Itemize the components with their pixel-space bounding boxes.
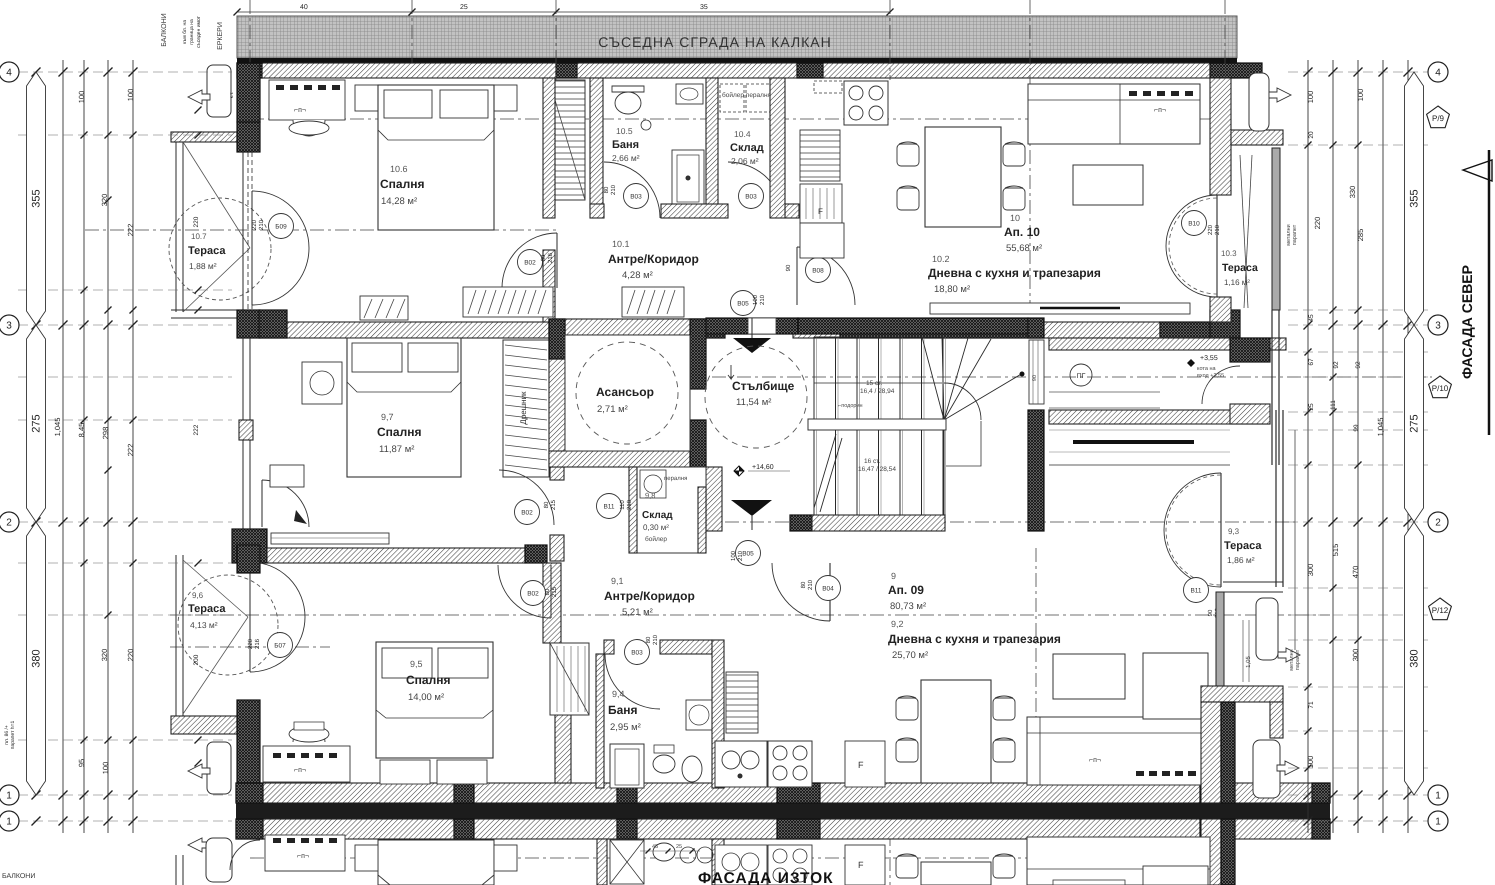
svg-text:200: 200 [193, 654, 200, 665]
svg-text:80: 80 [543, 501, 550, 508]
svg-text:3: 3 [1435, 321, 1441, 332]
svg-text:220: 220 [193, 216, 200, 227]
svg-text:100: 100 [752, 294, 759, 305]
svg-text:10.2: 10.2 [932, 254, 950, 264]
svg-text:1: 1 [1435, 791, 1441, 802]
svg-text:⌐п¬: ⌐п¬ [1089, 757, 1101, 764]
svg-text:Ап. 10: Ап. 10 [1004, 225, 1040, 239]
svg-text:16,4 / 28,94: 16,4 / 28,94 [860, 388, 895, 395]
svg-text:Р/10: Р/10 [1432, 384, 1449, 393]
svg-text:1: 1 [6, 817, 12, 828]
svg-text:бойлер пералня: бойлер пералня [722, 92, 772, 99]
svg-text:8,45: 8,45 [77, 423, 86, 438]
svg-text:Б09: Б09 [275, 224, 287, 231]
svg-text:3: 3 [6, 321, 12, 332]
svg-text:18,80 м²: 18,80 м² [934, 284, 970, 295]
svg-text:9,8: 9,8 [645, 491, 655, 500]
svg-text:210: 210 [626, 499, 633, 510]
svg-text:1,86 м²: 1,86 м² [1227, 555, 1255, 565]
svg-text:100: 100 [1356, 89, 1365, 102]
svg-text:В02: В02 [527, 591, 539, 598]
svg-text:20: 20 [1308, 131, 1315, 139]
svg-text:Стълбище: Стълбище [732, 379, 795, 393]
svg-text:0,30 м²: 0,30 м² [643, 523, 669, 532]
svg-text:СЪСЕДНА СГРАДА НА КАЛКАН: СЪСЕДНА СГРАДА НА КАЛКАН [598, 34, 832, 50]
svg-text:2,06 м²: 2,06 м² [731, 156, 759, 166]
svg-text:БАЛКОНИ: БАЛКОНИ [2, 873, 35, 880]
svg-text:15 ст.: 15 ст. [866, 380, 883, 387]
svg-text:25,70 м²: 25,70 м² [892, 650, 928, 661]
svg-text:В03: В03 [745, 194, 757, 201]
svg-text:парапет: парапет [1292, 224, 1298, 245]
svg-text:Ап. 09: Ап. 09 [888, 583, 924, 597]
svg-text:парапет: парапет [1295, 649, 1301, 670]
svg-text:1: 1 [6, 791, 12, 802]
svg-text:210: 210 [1214, 224, 1221, 235]
svg-text:470: 470 [1351, 566, 1360, 579]
svg-text:Р/12: Р/12 [1432, 606, 1449, 615]
svg-text:210: 210 [759, 294, 766, 305]
svg-text:80,73 м²: 80,73 м² [890, 601, 926, 612]
svg-text:Асансьор: Асансьор [596, 385, 654, 399]
svg-text:вход +3,55: вход +3,55 [1197, 373, 1224, 379]
svg-text:210: 210 [807, 579, 814, 590]
svg-text:10.5: 10.5 [616, 126, 633, 136]
svg-text:95: 95 [77, 759, 86, 767]
svg-text:222: 222 [126, 444, 135, 457]
svg-text:бойлер: бойлер [645, 536, 667, 543]
svg-text:Склад: Склад [730, 142, 764, 154]
svg-text:355: 355 [1409, 189, 1421, 207]
svg-text:ФАСАДА ИЗТОК: ФАСАДА ИЗТОК [698, 870, 834, 885]
svg-text:1,88 м²: 1,88 м² [189, 261, 217, 271]
svg-text:298: 298 [101, 427, 110, 440]
svg-text:+14,60: +14,60 [752, 464, 774, 471]
svg-text:215: 215 [550, 499, 557, 510]
svg-text:Спалня: Спалня [406, 673, 450, 687]
svg-text:2,66 м²: 2,66 м² [612, 153, 640, 163]
svg-text:В10: В10 [1188, 221, 1200, 228]
svg-text:⌐п¬: ⌐п¬ [297, 853, 309, 860]
svg-text:2: 2 [6, 518, 12, 529]
svg-text:1: 1 [1435, 817, 1441, 828]
svg-text:1,045: 1,045 [53, 418, 62, 437]
svg-text:515: 515 [1331, 544, 1340, 557]
svg-text:пералня: пералня [664, 476, 687, 482]
svg-text:съседен имот: съседен имот [196, 15, 202, 48]
svg-text:В11: В11 [603, 504, 614, 511]
svg-text:В03: В03 [631, 650, 643, 657]
svg-text:ПГ: ПГ [1077, 373, 1086, 380]
svg-text:216: 216 [254, 638, 261, 649]
svg-text:25: 25 [1308, 403, 1315, 411]
svg-text:92: 92 [1355, 361, 1362, 369]
svg-text:Дневна с кухня и трапезария: Дневна с кухня и трапезария [928, 266, 1101, 280]
svg-text:80: 80 [540, 254, 547, 261]
svg-text:2,71 м²: 2,71 м² [597, 404, 628, 415]
svg-text:+3,55: +3,55 [1200, 355, 1218, 362]
svg-text:100: 100 [1306, 756, 1315, 769]
svg-text:275: 275 [1409, 414, 1421, 432]
svg-text:100: 100 [101, 762, 110, 775]
svg-text:ЕРКЕРИ: ЕРКЕРИ [217, 22, 224, 50]
svg-text:4,28 м²: 4,28 м² [622, 270, 653, 281]
svg-text:90: 90 [1207, 609, 1214, 616]
svg-text:320: 320 [100, 649, 109, 662]
svg-text:кота на: кота на [1197, 366, 1216, 372]
svg-text:90: 90 [1032, 375, 1038, 381]
svg-text:320: 320 [100, 194, 109, 207]
svg-text:215: 215 [551, 586, 558, 597]
svg-text:330: 330 [1348, 186, 1357, 199]
svg-text:380: 380 [1409, 649, 1421, 667]
svg-text:Склад: Склад [642, 510, 673, 521]
svg-text:355: 355 [31, 189, 43, 207]
svg-text:14,28 м²: 14,28 м² [381, 196, 417, 207]
svg-text:Баня: Баня [612, 139, 639, 151]
svg-text:100: 100 [126, 89, 135, 102]
svg-text:380: 380 [31, 649, 43, 667]
svg-text:Спалня: Спалня [377, 425, 421, 439]
svg-text:5,21 м²: 5,21 м² [622, 607, 653, 618]
svg-text:300: 300 [1306, 564, 1315, 577]
svg-text:80: 80 [800, 581, 807, 588]
svg-text:80: 80 [544, 588, 551, 595]
svg-text:100: 100 [77, 91, 86, 104]
svg-text:210: 210 [258, 219, 265, 230]
svg-text:45: 45 [1308, 314, 1315, 322]
svg-text:1,05: 1,05 [1245, 656, 1252, 668]
svg-text:9,1: 9,1 [611, 576, 624, 586]
svg-text:Тераса: Тераса [1222, 262, 1258, 274]
svg-text:25: 25 [460, 4, 468, 11]
svg-text:9,2: 9,2 [891, 619, 904, 629]
svg-text:10: 10 [1010, 213, 1020, 223]
svg-text:80: 80 [645, 636, 652, 643]
svg-text:99: 99 [1353, 424, 1360, 432]
svg-text:В03: В03 [630, 194, 642, 201]
svg-text:100: 100 [1306, 91, 1315, 104]
svg-text:275: 275 [31, 414, 43, 432]
svg-text:⌐п¬: ⌐п¬ [1154, 107, 1166, 114]
svg-text:220: 220 [126, 649, 135, 662]
svg-text:300: 300 [1351, 649, 1360, 662]
svg-text:67: 67 [1308, 358, 1315, 366]
svg-text:В02: В02 [524, 260, 536, 267]
svg-text:10.1: 10.1 [612, 239, 630, 249]
svg-text:Дрешник: Дрешник [519, 391, 528, 425]
svg-text:16,47 / 28,54: 16,47 / 28,54 [858, 466, 896, 473]
svg-text:285: 285 [1356, 229, 1365, 242]
svg-text:F: F [818, 207, 823, 216]
svg-text:9,6: 9,6 [192, 591, 204, 600]
svg-text:216: 216 [547, 252, 554, 263]
svg-text:220: 220 [1313, 217, 1322, 230]
svg-text:В05: В05 [737, 301, 749, 308]
svg-text:220: 220 [1207, 224, 1214, 235]
svg-text:В11: В11 [1190, 588, 1201, 595]
svg-text:210: 210 [610, 184, 617, 195]
svg-text:9,7: 9,7 [381, 412, 394, 422]
svg-text:Тераса: Тераса [188, 245, 226, 257]
svg-text:45: 45 [652, 844, 658, 850]
svg-text:92: 92 [1333, 361, 1340, 369]
svg-text:9,3: 9,3 [1228, 527, 1240, 536]
svg-text:111: 111 [1330, 400, 1337, 410]
svg-text:ФАСАДА СЕВЕР: ФАСАДА СЕВЕР [1459, 265, 1475, 379]
svg-text:парапет h=1: парапет h=1 [10, 721, 16, 750]
svg-text:71: 71 [1308, 701, 1315, 709]
svg-text:10.6: 10.6 [390, 164, 408, 174]
svg-text:1,045: 1,045 [1376, 418, 1385, 437]
svg-text:55,68 м²: 55,68 м² [1006, 243, 1042, 254]
svg-text:граница на: граница на [189, 19, 195, 45]
svg-text:В02: В02 [521, 510, 533, 517]
svg-text:11,87 м²: 11,87 м² [379, 444, 414, 455]
svg-text:Р/9: Р/9 [1432, 114, 1445, 123]
svg-text:Баня: Баня [608, 703, 638, 717]
svg-text:⌐п¬: ⌐п¬ [294, 767, 306, 774]
svg-text:220: 220 [247, 638, 254, 649]
svg-text:F: F [858, 760, 864, 770]
svg-text:F: F [858, 860, 864, 870]
svg-text:40: 40 [300, 4, 308, 11]
svg-text:10.7: 10.7 [191, 232, 207, 241]
svg-text:80: 80 [603, 186, 610, 193]
svg-text:110: 110 [619, 500, 626, 510]
svg-text:16 ст.: 16 ст. [864, 458, 881, 465]
svg-text:100: 100 [730, 550, 737, 561]
svg-text:В05: В05 [742, 551, 754, 558]
svg-text:2,95 м²: 2,95 м² [610, 722, 641, 733]
svg-text:к.т.: к.т. [229, 92, 235, 99]
svg-text:Антре/Коридор: Антре/Коридор [604, 589, 695, 603]
svg-text:210: 210 [652, 634, 659, 645]
svg-text:90: 90 [785, 264, 792, 271]
svg-text:11,54 м²: 11,54 м² [736, 397, 771, 408]
svg-text:10.3: 10.3 [1221, 249, 1237, 258]
svg-text:към бл. на: към бл. на [182, 20, 188, 44]
svg-text:⌐подорин: ⌐подорин [838, 403, 863, 409]
svg-text:9: 9 [891, 571, 896, 581]
svg-text:14,00 м²: 14,00 м² [408, 692, 444, 703]
svg-text:Спалня: Спалня [380, 177, 424, 191]
svg-text:4: 4 [1435, 68, 1441, 79]
svg-text:Тераса: Тераса [188, 603, 226, 615]
svg-text:В04: В04 [822, 586, 834, 593]
svg-text:4: 4 [6, 68, 12, 79]
svg-text:Дневна с кухня и трапезария: Дневна с кухня и трапезария [888, 632, 1061, 646]
svg-text:БАЛКОНИ: БАЛКОНИ [161, 13, 168, 46]
svg-text:210: 210 [737, 550, 744, 561]
svg-text:Антре/Коридор: Антре/Коридор [608, 252, 699, 266]
svg-text:222: 222 [193, 424, 200, 435]
svg-text:222: 222 [126, 224, 135, 237]
svg-text:9,4: 9,4 [612, 689, 625, 699]
svg-text:25: 25 [676, 844, 682, 850]
svg-text:Тераса: Тераса [1224, 540, 1262, 552]
svg-text:35: 35 [700, 4, 708, 11]
svg-text:9,5: 9,5 [410, 659, 423, 669]
svg-text:2: 2 [1435, 518, 1441, 529]
svg-text:Б07: Б07 [274, 643, 286, 650]
svg-text:⌐п¬: ⌐п¬ [294, 107, 306, 114]
svg-text:10.4: 10.4 [734, 129, 751, 139]
svg-text:4,13 м²: 4,13 м² [190, 620, 218, 630]
svg-text:В08: В08 [812, 268, 824, 275]
